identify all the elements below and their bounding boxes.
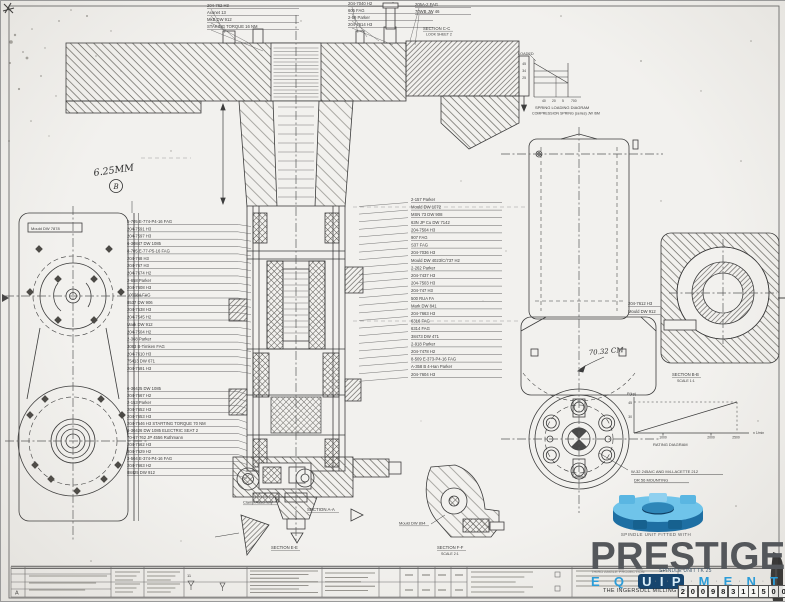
section-bb-scale: SCALE 1:1 <box>677 379 695 383</box>
callout-label: MkB DW 912 <box>207 17 232 22</box>
drawing-number-digit: 0 <box>768 585 779 598</box>
drawing-number-digit: 2 <box>678 585 689 598</box>
scan-speckle <box>660 200 661 201</box>
rating-x-axis-label: n 1/min <box>753 431 764 435</box>
mould-894-label: Mould DW 894 <box>399 521 426 526</box>
callout-label: 204-7040 H2 <box>348 1 373 6</box>
spring-x-tick: 20 <box>552 99 556 103</box>
rating-y-label: P(kp) <box>627 392 637 396</box>
callout-label: 204-7604 H3 <box>411 372 436 377</box>
scan-speckle <box>14 34 16 36</box>
callout-label: 63N JP Cu DW 7142 <box>411 220 450 225</box>
scan-speckle <box>560 15 562 17</box>
rating-y-tick: 30 <box>628 415 632 419</box>
drawing-number-digit: 0 <box>778 585 785 598</box>
callout-label: 204-7591 H3 <box>127 226 152 231</box>
letter-separator-dot: · <box>655 578 657 585</box>
callout-label: 204-7653 H3 <box>127 414 152 419</box>
spring-y-tick: 45 <box>522 62 526 66</box>
callout-label: S37 FAG <box>411 243 428 248</box>
drawing-number-digit: 9 <box>708 585 719 598</box>
callout-label: 6-30847 DW 1085 <box>127 241 162 246</box>
drawing-number-digit: 0 <box>688 585 699 598</box>
callout-label: 204-7608 H3 <box>127 285 152 290</box>
callout-label: 204-7663 H2 <box>127 463 152 468</box>
callout-label: 6-30425 DW 1085 <box>127 386 162 391</box>
spring-y-tick: 34 <box>522 69 526 73</box>
rating-diagram-caption: RATING DIAGRAM <box>653 442 688 447</box>
section-bb-block <box>661 233 779 363</box>
callout-label: 2-368 Parker <box>127 337 152 342</box>
callout-label: Mark DW 912 <box>127 322 153 327</box>
callout-label: 500 RUA FA <box>411 296 434 301</box>
callout-label: 38473 DW 471 <box>411 334 440 339</box>
callout-label: 205A-2 FAG <box>415 2 438 7</box>
callout-label: 204-7545 H2 <box>127 315 152 320</box>
scan-speckle <box>86 15 88 17</box>
scan-speckle <box>505 250 506 251</box>
callout-label: 204-7437 H3 <box>411 273 436 278</box>
section-bb-label: SECTION B-B <box>672 372 699 377</box>
callout-label: Mould DW 4023/C/737 H2 <box>411 258 461 263</box>
letter-separator-dot: · <box>690 578 692 585</box>
callout-label: 6314 FAG <box>411 326 430 331</box>
callout-label: 2-262 Parker <box>411 265 436 270</box>
scan-speckle <box>750 40 752 42</box>
callout-label: 204-767 H3 <box>127 263 150 268</box>
section-ff-label: SECTION F-F <box>437 545 464 550</box>
callout-label: 3083 B-Timken FAG <box>127 344 165 349</box>
callout-label: 2-157 Parker <box>411 197 436 202</box>
callout-label: 8-509 E-373-P4-16 FAG <box>411 357 456 362</box>
mounting-annotation-1: W-32 245A/C AND M4-LACETTE 212 <box>631 469 699 474</box>
rating-x-tick: 2500 <box>732 436 740 440</box>
callout-label: 8-705 E-774-P4-16 FAG <box>127 219 172 224</box>
callout-label: 6316 FAG <box>411 319 430 324</box>
scan-speckle <box>58 20 60 22</box>
scan-speckle <box>640 60 642 62</box>
equipment-letter: U <box>642 575 651 588</box>
callout-label: 204-7610 H3 <box>127 351 152 356</box>
scan-speckle <box>30 120 32 122</box>
scan-speckle <box>180 540 181 541</box>
spring-y-tick: 25 <box>522 76 526 80</box>
section-ee-label: SECTION E-E <box>271 545 298 550</box>
section-cc-label: SECTION C-C <box>423 26 450 31</box>
scan-speckle <box>31 28 33 30</box>
drawing-number-digit: 5 <box>758 585 769 598</box>
callout-label: Axonet 13 <box>207 10 227 15</box>
drawing-number-digit: 3 <box>728 585 739 598</box>
gearbox-label: Mould DW 7878 <box>31 226 60 231</box>
mounting-annotation-2: DR 56 MOUNTING <box>634 478 668 483</box>
scan-speckle <box>18 88 20 90</box>
equipment-letter: Q <box>614 575 624 588</box>
callout-label: 100084 FAG <box>127 293 151 298</box>
callout-label: MSN 73 DW 908 <box>411 212 443 217</box>
scan-speckle <box>40 75 42 77</box>
callout-label: 204-7546 H3 STARTING TORQUE 70 NM <box>127 421 206 426</box>
callout-label: 204-7674 H2 <box>127 270 152 275</box>
projection-note: THIRD ANGLE PROJECTION <box>591 569 645 574</box>
letter-separator-dot: · <box>630 578 632 585</box>
spring-x-tick: 700 <box>571 99 577 103</box>
loaded-label: LOADED <box>518 52 534 56</box>
scan-speckle <box>90 560 92 562</box>
rating-y-tick: 45 <box>628 401 632 405</box>
callout-label: 204-7652 H3 <box>127 407 152 412</box>
scan-speckle <box>26 57 29 60</box>
callout-label: 204-7567 H2 <box>127 393 152 398</box>
callout-label: 204-7529 H2 <box>127 449 152 454</box>
callout-label: 8537 DW 906 <box>127 300 153 305</box>
callout-label: 88425 DW 912 <box>127 470 156 475</box>
letter-separator-dot: · <box>666 578 668 585</box>
callout-label: STAKING TORQUE 16 NM <box>207 24 258 29</box>
drawing-number-digit: 1 <box>738 585 749 598</box>
callout-label: 2-153 Parker <box>127 400 152 405</box>
callout-label: 204-7036 H3 <box>411 250 436 255</box>
scan-speckle <box>700 90 701 91</box>
callout-label: 204-7614 H3 <box>348 22 373 27</box>
callout-label: 204-7663 H3 <box>411 311 436 316</box>
prestige-gear-icon <box>609 493 707 533</box>
scan-speckle <box>70 9 72 11</box>
letter-separator-dot: · <box>606 578 608 585</box>
scan-speckle <box>8 140 10 142</box>
scan-speckle <box>55 95 56 96</box>
scanned-engineering-drawing: 6.25MM B LOADED 45 34 25 40 20 5 700 SPR… <box>0 0 785 602</box>
callout-label: 70-67-762 JP 4556 Ruthmann <box>127 435 184 440</box>
letter-separator-dot: · <box>738 578 740 585</box>
callout-label: 2-658 Parker <box>127 278 152 283</box>
callout-label: 6-30426 DW 1085 ELECTRIC SEAT 2 <box>127 428 199 433</box>
equipment-letter: E <box>591 575 600 588</box>
callout-label: 204-7562 H3 <box>127 442 152 447</box>
letter-separator-dot: · <box>715 578 717 585</box>
drawing-title: SPINDLE UNIT TK 25 <box>659 568 712 574</box>
drawing-number-digit: 1 <box>748 585 759 598</box>
scan-speckle <box>44 47 45 48</box>
scan-speckle <box>170 150 171 151</box>
scan-speckle <box>22 51 24 53</box>
callout-label: 204-768 H3 <box>127 256 150 261</box>
spring-x-tick: 5 <box>562 99 564 103</box>
scan-speckle <box>757 420 758 421</box>
revision-letter: A <box>15 591 19 597</box>
letter-separator-dot: · <box>762 578 764 585</box>
callout-label: 204-7538 H3 <box>127 307 152 312</box>
scan-speckle <box>421 421 422 422</box>
callout-label: 204-7504 H2 <box>127 329 152 334</box>
callout-label: 8-705 E-77-P5-16 FAG <box>127 248 170 253</box>
rating-x-tick: 1000 <box>659 436 667 440</box>
scan-speckle <box>9 40 13 44</box>
spring-diagram-subcaption: COMPRESSION SPRING (series) JW /6M <box>532 112 600 116</box>
drawing-number-digit: 0 <box>698 585 709 598</box>
spring-diagram-caption: SPRING LOADING DIAGRAM <box>535 105 589 110</box>
callout-label: 204-762 H3 <box>207 3 230 8</box>
drawing-number: 20098311500 <box>678 585 785 598</box>
scan-speckle <box>740 160 742 162</box>
callout-label: 2-59 Parker <box>348 15 370 20</box>
callout-label: 605 FAG <box>348 8 365 13</box>
section-cc-sub: LOOK SHEET 2 <box>426 33 452 37</box>
callout-label: 70WB JW 46 <box>415 9 440 14</box>
spring-x-tick: 40 <box>542 99 546 103</box>
callout-label: Mould DW 912 <box>628 309 656 314</box>
callout-label: 3-504 E-374-P4-16 FAG <box>127 456 172 461</box>
scan-speckle <box>300 20 301 21</box>
section-aa-label: SECTION A-A <box>307 507 335 512</box>
callout-label: 204-7504 H3 <box>411 227 436 232</box>
callout-label: 204-747 H3 <box>411 288 434 293</box>
callout-label: 204-7591 H3 <box>127 366 152 371</box>
scan-speckle <box>48 135 49 136</box>
scan-speckle <box>110 30 111 31</box>
section-ff-scale: SCALE 2:1 <box>441 552 459 556</box>
callout-label: 75413 DW 671 <box>127 359 156 364</box>
callout-label: Mould DW 1072 <box>411 205 442 210</box>
callout-label: 204-7503 H3 <box>411 281 436 286</box>
clamp-assembly-label: Clamp Assembly <box>243 500 273 505</box>
callout-label: 204-7597 H3 <box>127 234 152 239</box>
callout-label: 907 FAG <box>411 235 428 240</box>
prestige-watermark: SPINDLE UNIT FITTED WITH PRESTIGE THIRD … <box>589 493 785 601</box>
callout-label: Mark DW 841 <box>411 303 437 308</box>
callout-label: 204-7478 H2 <box>411 349 436 354</box>
handwritten-flag: B <box>113 183 119 191</box>
equipment-letter: I <box>660 575 664 588</box>
scan-speckle <box>9 62 11 64</box>
callout-label: 2-918 Parker <box>411 341 436 346</box>
drawing-number-digit: 8 <box>718 585 729 598</box>
scan-speckle <box>460 180 461 181</box>
rating-x-tick: 2000 <box>707 436 715 440</box>
callout-label: A-358 B 4-Han Parker <box>411 364 453 369</box>
callout-label: 204-7612 H3 <box>628 301 653 306</box>
